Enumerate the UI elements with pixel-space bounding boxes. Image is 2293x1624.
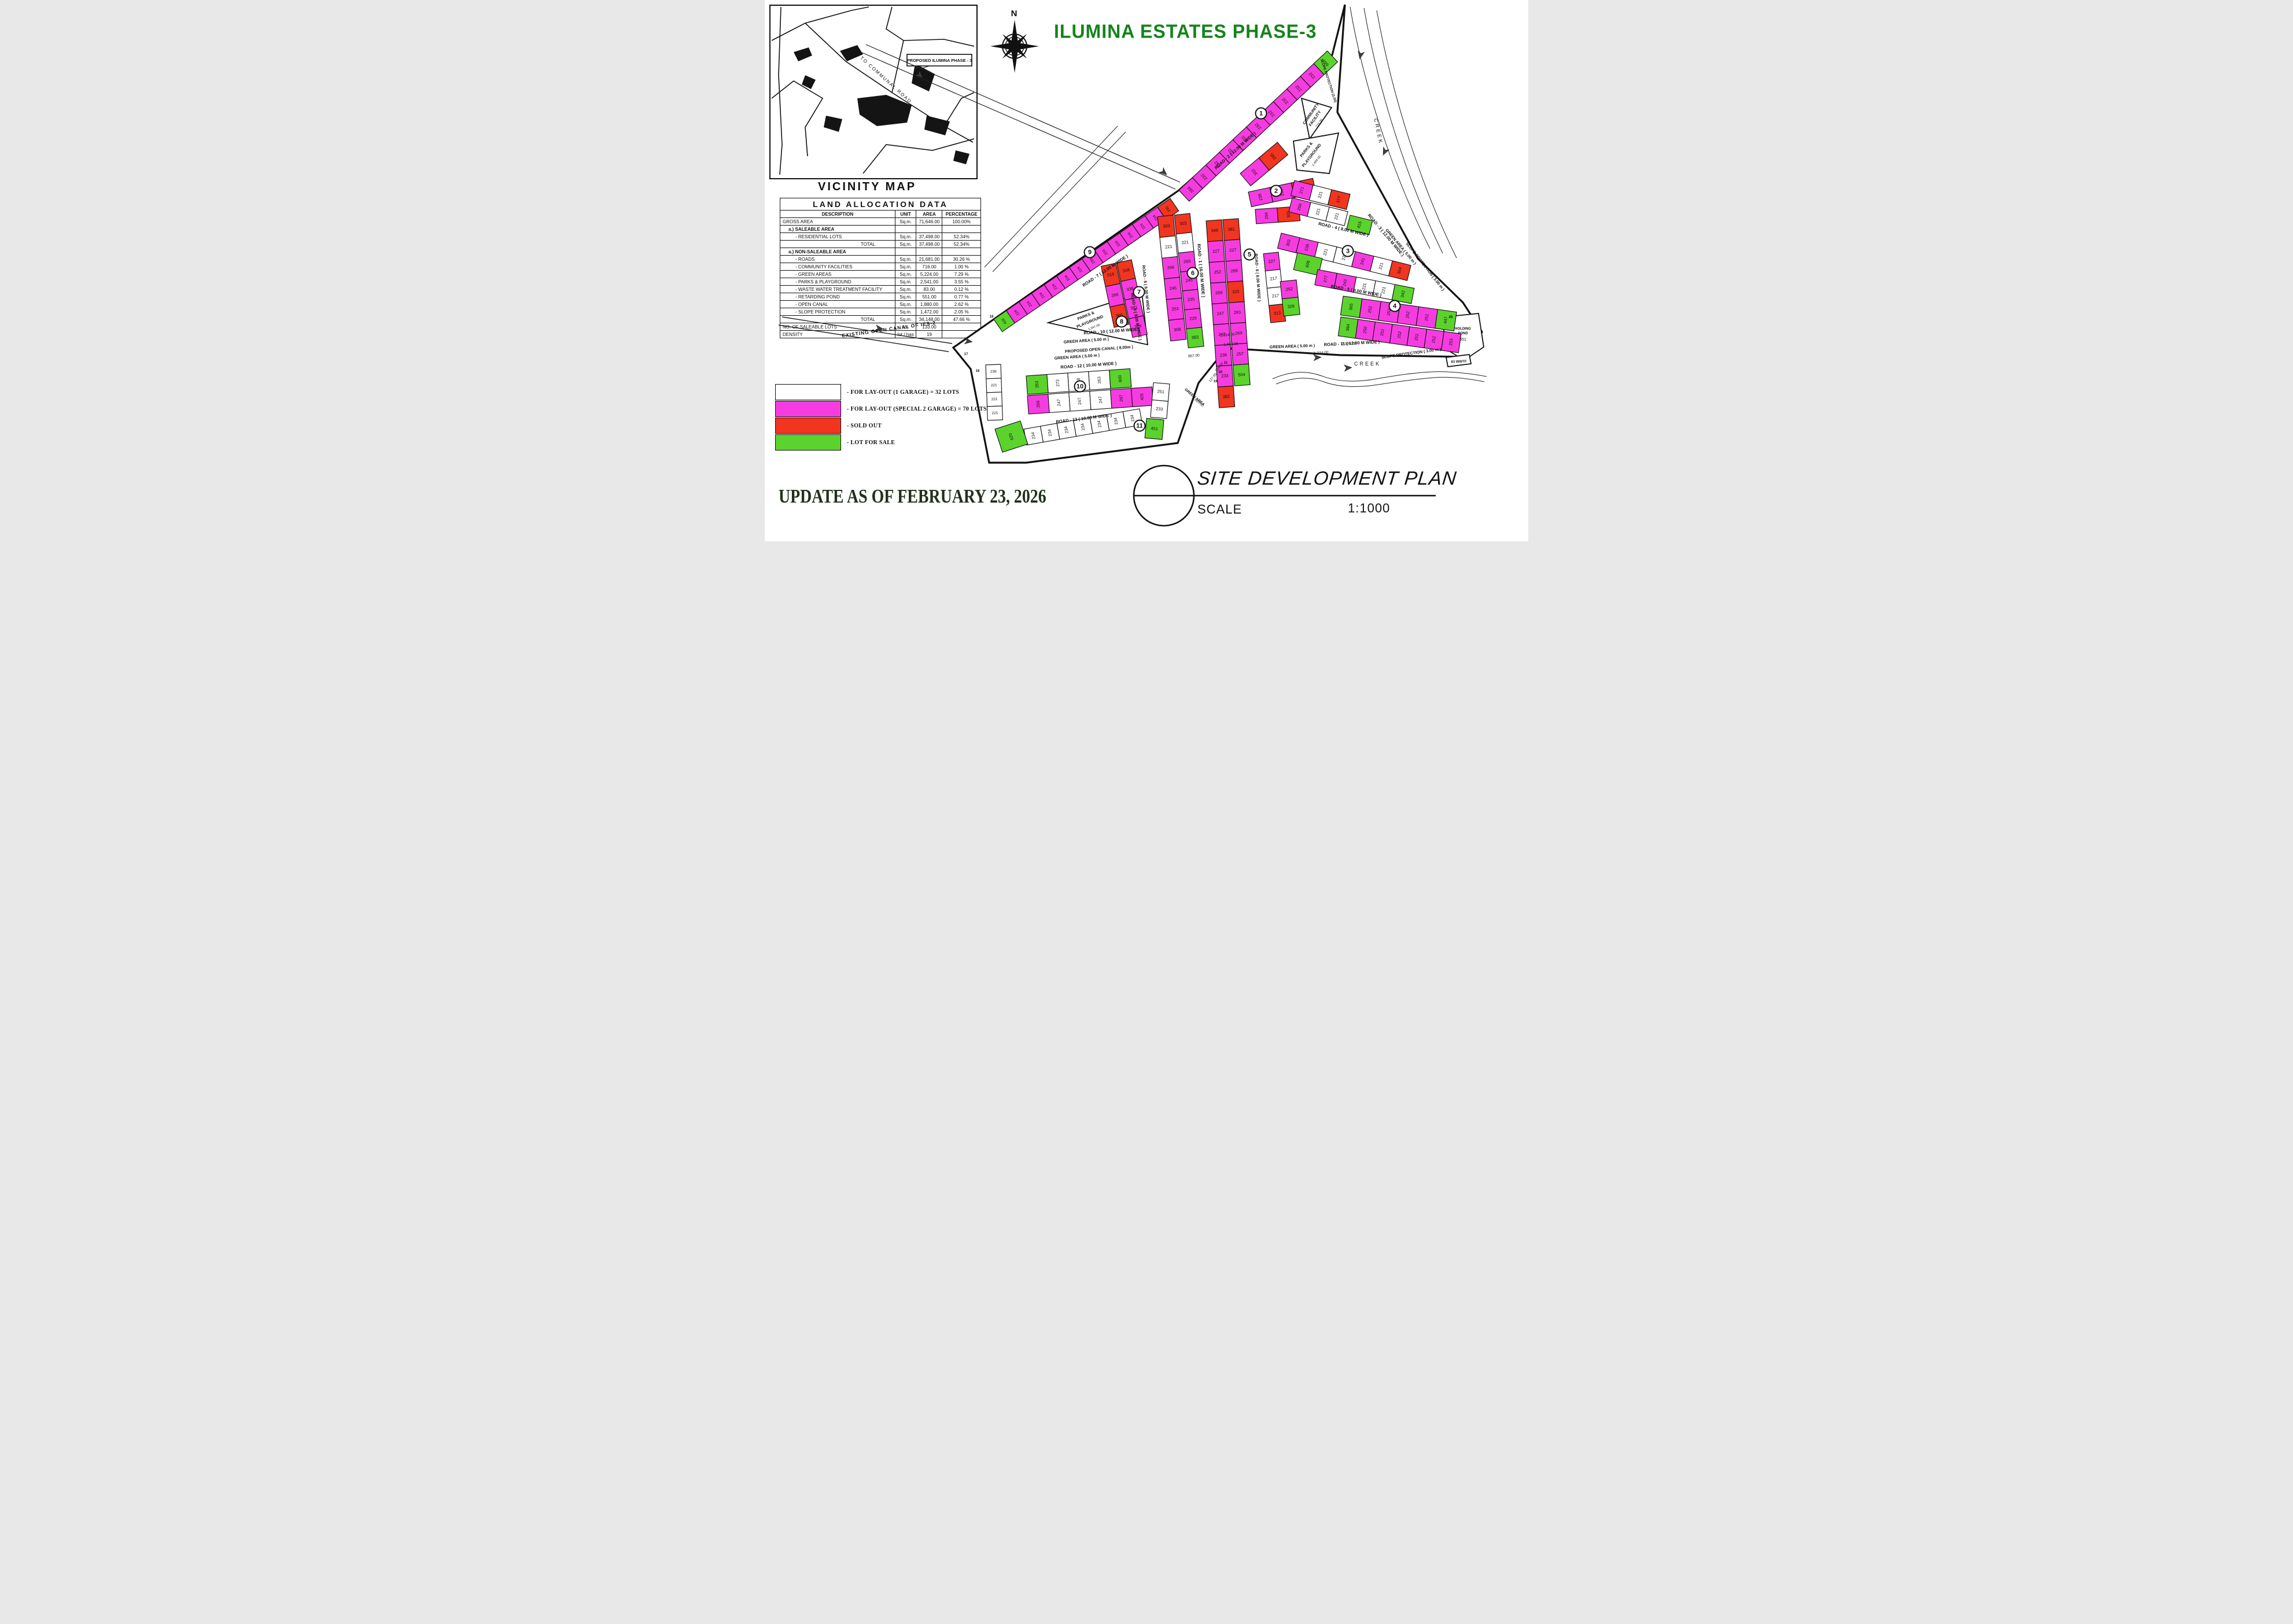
flow-arrow-icon (1159, 168, 1169, 178)
lot-area-label: 236 (990, 370, 997, 374)
lot-area-label: 247 (1097, 396, 1103, 404)
lot-area-label: 238 (1219, 352, 1227, 358)
title-block (1089, 451, 1447, 538)
legend-item: - FOR LAY-OUT (SPECIAL 2 GARAGE) = 70 LO… (775, 401, 1018, 417)
legend-label: - LOT FOR SALE (847, 440, 895, 446)
lot-area-label: 229 (1189, 315, 1197, 321)
lot-area-label: 297 (1118, 394, 1124, 402)
lot-area-label: 265 (1184, 259, 1191, 264)
lot-area-label: 308 (1174, 327, 1181, 333)
lot-area-label: 263 (1096, 377, 1102, 384)
map-line (1276, 377, 1484, 386)
block-number-6: 6 (1188, 268, 1199, 279)
block-number-3: 3 (1343, 246, 1354, 257)
map-line (861, 52, 1175, 189)
block-number-label: 11 (1136, 422, 1143, 429)
lot-area-label: 252 (1379, 329, 1385, 336)
drawing-title: SITE DEVELOPMENT PLAN (1196, 467, 1458, 489)
lot-area-label: 250 (1362, 326, 1368, 334)
map-line (779, 325, 949, 352)
block-number-10: 10 (1075, 381, 1086, 392)
lot-area-label: 235 (1187, 296, 1195, 302)
lot-area-label: 253 (1171, 306, 1179, 312)
map-label: 551 (1459, 338, 1466, 342)
legend-swatch-m (775, 401, 841, 417)
lot-area-label: 303 (1163, 223, 1170, 229)
legend-label: - FOR LAY-OUT (SPECIAL 2 GARAGE) = 70 LO… (847, 406, 987, 412)
lot-area-label: 221 (1165, 243, 1173, 249)
lot-area-label: 313 (1273, 310, 1281, 316)
site-development-plan-sheet: PROPOSED ILUMINA PHASE - 3 VICINITY MAP … (765, 0, 1528, 541)
lot-area-label: 227 (1229, 247, 1237, 253)
boundary-tick: 17 (964, 353, 968, 356)
lot-area-label: 273 (1055, 379, 1061, 387)
map-label: POND (1458, 332, 1468, 335)
block-number-label: 2 (1274, 187, 1278, 194)
lot-area-label: 451 (1151, 426, 1158, 431)
block-number-label: 5 (1248, 251, 1251, 258)
lot-area-label: 325 (1232, 289, 1240, 294)
map-line (1273, 372, 1487, 381)
lot-area-label: 252 (1404, 311, 1411, 319)
block-number-label: 4 (1393, 302, 1397, 309)
block-number-5: 5 (1244, 249, 1255, 260)
legend-swatch-w (775, 384, 841, 400)
lot-area-label: 365 (1348, 303, 1354, 311)
lot-area-label: 252 (1285, 286, 1293, 292)
block-number-11: 11 (1134, 420, 1145, 431)
lot-area-label: 227 (1268, 259, 1275, 264)
lot-area-label: 252 (1367, 305, 1373, 313)
lot-area-label: 303 (1179, 220, 1187, 226)
lot-area-label: 346 (1211, 227, 1218, 233)
block-11-strip: 451 (1145, 418, 1164, 439)
legend-swatch-g (775, 434, 841, 451)
lot-area-label: 266 (1167, 264, 1174, 270)
block-number-label: 3 (1346, 248, 1350, 254)
lot-area-label: 217 (1270, 275, 1277, 281)
map-line (866, 45, 1180, 182)
block-number-1: 1 (1256, 108, 1267, 119)
lot-area-label: 353 (1034, 381, 1040, 388)
block-number-9: 9 (1085, 247, 1096, 258)
lot-area-label: 382 (1222, 394, 1230, 400)
lot-area-label: 381 (1227, 226, 1235, 232)
block-number-4: 4 (1389, 301, 1400, 312)
lot-area-label: 217 (1271, 293, 1279, 298)
lot-area-label: 246 (1169, 285, 1177, 291)
lot-area-label: 600 (1117, 375, 1123, 382)
flow-arrow-icon (915, 71, 925, 80)
map-label: 83 WWTF (1451, 360, 1467, 364)
lot-area-label: 253 (1448, 338, 1454, 346)
block-number-label: 9 (1088, 249, 1092, 256)
lot-area-label: 252 (1431, 335, 1437, 343)
lot-area-label: 383 (1191, 334, 1199, 340)
lot-area-label: 283 (1233, 309, 1241, 315)
block-11-strip: 251233 (1151, 383, 1170, 419)
lot-area-label: 289 (1230, 268, 1238, 274)
map-label: EXISTING OPEN CANAL OF IES-2 (842, 320, 937, 339)
flow-arrow-icon (1344, 364, 1352, 371)
legend-item: - LOT FOR SALE (775, 434, 1018, 451)
lot-area-label: 252 (1424, 313, 1430, 321)
lot-area-label: 247 (1056, 399, 1062, 407)
legend-swatch-r (775, 418, 841, 434)
block-number-label: 7 (1137, 289, 1141, 296)
lot-area-label: 269 (1215, 290, 1223, 296)
boundary-tick: 21 (1224, 361, 1228, 365)
boundary-tick: 16 (976, 370, 980, 373)
block-number-label: 1 (1259, 110, 1263, 117)
boundary-tick: 25 (1449, 316, 1453, 319)
lot-area-label: 257 (1236, 351, 1244, 357)
lot-area-label: 227 (1212, 248, 1220, 254)
block-number-label: 10 (1077, 383, 1083, 390)
block-number-7: 7 (1134, 287, 1145, 298)
map-label: CREEK (1354, 361, 1381, 367)
legend-label: - FOR LAY-OUT (1 GARAGE) = 32 LOTS (847, 389, 959, 396)
map-label: 2,196.00 (1341, 342, 1356, 346)
lot-area-label: 504 (1238, 372, 1245, 378)
lot-area-label: 221 (1181, 239, 1189, 245)
boundary-tick: 20 (1219, 371, 1223, 374)
boundary-tick: 19 (1214, 380, 1218, 383)
legend-label: - SOLD OUT (847, 423, 882, 429)
update-note: UPDATE AS OF FEBRUARY 23, 2026 (779, 486, 1046, 508)
legend-item: - SOLD OUT (775, 418, 1018, 434)
boundary-tick: 18 (990, 315, 994, 319)
lot-area-label: 394 (1345, 324, 1351, 331)
lot-area-label: 447 (1443, 316, 1449, 324)
map-label: CREEK (1373, 118, 1384, 145)
lot-area-label: 269 (1235, 330, 1243, 336)
lot-area-label: 252 (1214, 269, 1221, 275)
lot-area-label: 356 (1035, 400, 1041, 408)
lot-area-label: 329 (1287, 304, 1295, 309)
legend: - FOR LAY-OUT (1 GARAGE) = 32 LOTS- FOR … (775, 384, 1018, 451)
scale-value: 1:1000 (1348, 501, 1390, 516)
lot-area-label: 252 (1396, 331, 1403, 338)
lot-area-label: 247 (1077, 397, 1082, 405)
block-number-label: 6 (1191, 270, 1195, 276)
block-3-strip: 252329 (1280, 280, 1300, 316)
legend-item: - FOR LAY-OUT (1 GARAGE) = 32 LOTS (775, 384, 1018, 400)
map-label: HOLDING (1455, 327, 1471, 331)
lot-area-label: 251 (1157, 389, 1164, 394)
block-number-8: 8 (1116, 316, 1127, 327)
scale-label: SCALE (1197, 502, 1242, 517)
lot-area-label: 247 (1216, 311, 1224, 316)
lot-area-label: 252 (1414, 333, 1420, 341)
lot-area-label: 405 (1139, 393, 1145, 401)
map-label: 867.00 (1188, 353, 1200, 358)
lot-area-label: 294 (1263, 212, 1269, 220)
block-number-label: 8 (1120, 318, 1123, 325)
block-number-2: 2 (1271, 186, 1282, 197)
lot-area-label: 233 (1156, 406, 1163, 412)
